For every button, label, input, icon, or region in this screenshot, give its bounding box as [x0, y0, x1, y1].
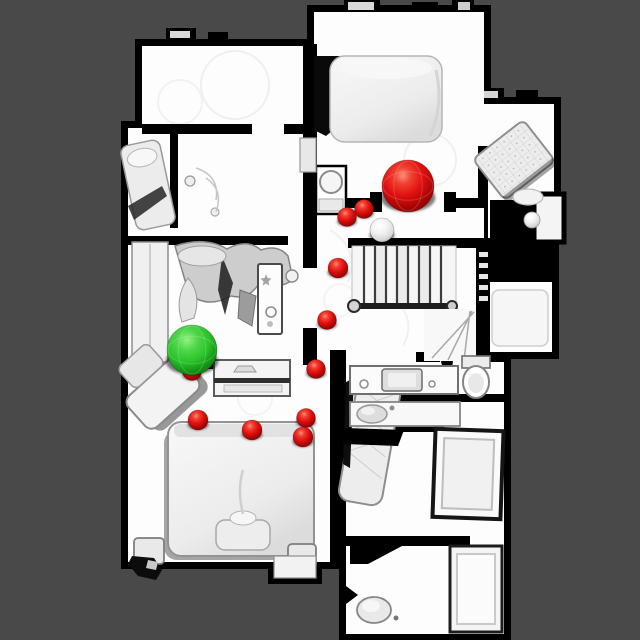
waypoint-marker	[328, 258, 348, 278]
waypoint-marker	[242, 420, 262, 440]
goal-sphere-marker	[167, 325, 217, 375]
waypoint-marker	[338, 208, 357, 227]
east-room-rug	[492, 290, 548, 346]
stair-landing	[424, 309, 476, 361]
waypoint-marker	[307, 360, 326, 379]
waypoint-marker	[318, 311, 337, 330]
toilet-bowl	[320, 171, 342, 193]
laundry-unit	[300, 138, 316, 172]
waypoint-marker	[355, 200, 374, 219]
waypoint-marker	[188, 410, 208, 430]
house-topdown-render	[0, 0, 640, 640]
bed-pillow	[340, 57, 432, 79]
scene-viewport[interactable]	[0, 0, 640, 640]
white-sphere-marker	[370, 218, 394, 242]
threshold-shadow	[344, 428, 404, 446]
newel-post	[348, 300, 360, 312]
target-sphere-marker	[382, 160, 434, 212]
stair-railing	[352, 303, 454, 309]
top-bedroom-furniture	[314, 56, 442, 142]
waypoint-marker	[297, 409, 316, 428]
small-white-ball	[524, 212, 540, 228]
waypoint-marker	[293, 427, 313, 447]
